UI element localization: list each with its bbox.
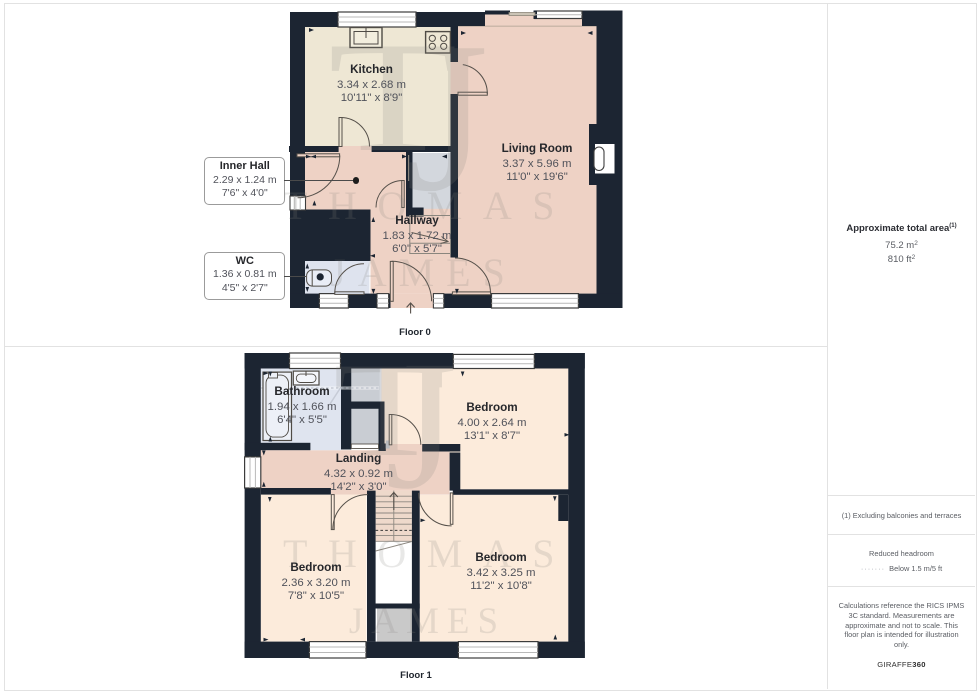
- svg-text:JAMES: JAMES: [349, 601, 506, 642]
